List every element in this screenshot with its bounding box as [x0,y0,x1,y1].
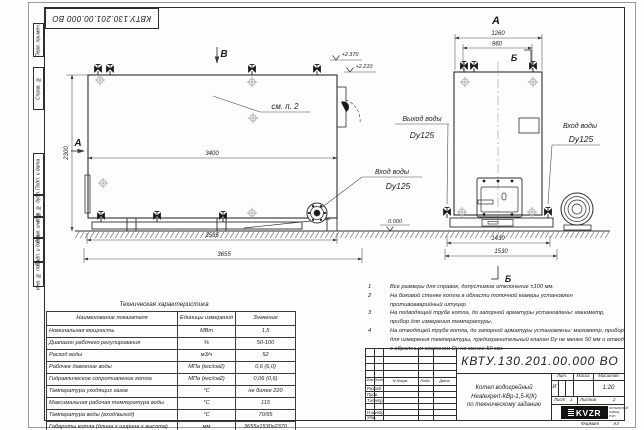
skid-side [450,218,553,227]
spec-table: Наименование показателя Единицы измерени… [46,311,296,430]
boiler-views: 3400 2300 3535 3655 А В см. п. 2 +2.370 … [44,8,624,295]
chimney-pipe [337,87,360,127]
note-item: 3На подводящей трубе котла, до запорной … [368,309,624,327]
scale-header: Масштаб [593,373,624,380]
crosshair-icon [527,207,537,217]
col-header-sign: Подп. [418,378,433,384]
valve-icon [219,212,226,223]
valve-icon [94,65,101,76]
valve-icon [106,65,113,76]
sheet-value: 1 [570,398,572,402]
door-latch-icon [502,193,506,200]
frame-column-sprav-no: Справ. № [33,67,44,110]
drawing-sheet: КВТУ.130.201.00.000 ВО Перв. примен. Спр… [0,0,644,430]
ground-line [75,231,610,238]
frame-column-inv-podl: Инв. № подл. [33,262,44,287]
valve-icon [544,208,551,219]
role-tkontr: Т.контр. [367,399,384,403]
valve-icon [529,62,536,73]
scale-value: 1:20 [593,380,624,396]
frame-column-podp-data-1: Подп. и дата [33,153,44,195]
valve-icon [97,212,104,223]
spec-table-block: Техническая характеристика Наименование … [46,301,282,430]
crosshair-icon [460,77,470,87]
frame-column-perv-primen: Перв. примен. [33,23,44,57]
col-header-izm: Изм [366,378,374,384]
crosshair-icon [95,75,105,85]
format-note: ФорматА3 [581,421,633,426]
dim-1530: 1530 [494,249,508,255]
role-razrab: Разраб. [367,387,382,391]
crosshair-icon [528,77,538,87]
table-row: Температура уходящих газов°Сне более 220 [47,386,296,398]
role-utv: Утв. [367,416,377,420]
inlet-size-label: Dy125 [386,181,411,191]
skid-front [92,218,337,231]
see-note-label: см. п. 2 [271,102,299,111]
lit-value: И [551,380,558,396]
valve-icon [460,62,467,73]
table-row: Диапазон рабочего регулирования%50-100 [47,338,296,350]
side-inlet-label: Вход воды Dy125 [548,122,600,204]
spec-table-title: Техническая характеристика [46,301,282,308]
crosshair-icon [98,178,108,188]
dim-960: 960 [492,42,503,48]
see-note-callout: см. п. 2 [213,96,310,112]
col-header-doc: N докум. [383,378,418,384]
lit-header: Лит. [551,373,573,380]
marker-b-top: Б [511,53,518,63]
valve-icon [443,208,450,219]
note-item: 1Все размеры для справок, допустимое отк… [368,283,624,292]
sheets-label: Листов [580,398,596,402]
table-row: Рабочее давление водыМПа (кгс/см2)0,6 (6… [47,362,296,374]
spec-header-row: Наименование показателя Единицы измерени… [47,312,296,326]
mass-header: Масса [573,373,593,380]
note-item: 2На боковой стенке котла в области топоч… [368,292,624,310]
dim-1430: 1430 [491,236,505,242]
elev-0000: 0.000 [388,219,403,225]
valve-icon [153,212,160,223]
elevation-marks: +2.370 +2.210 [330,52,376,72]
crosshair-icon [247,77,257,87]
logo-bars-icon [568,408,574,417]
inlet-water-label: Вход воды [375,168,410,176]
dim-2300: 2300 [64,146,70,161]
dim-3400: 3400 [205,151,219,157]
crosshair-icon [247,208,257,218]
dim-3535: 3535 [205,233,219,239]
doc-number: КВТУ.130.201.00.000 ВО [456,349,624,373]
outlet-water-label: Выход воды [402,115,442,123]
table-row: Расход водым3/ч52 [47,350,296,362]
furnace-door [477,178,522,217]
col-header-date: Дата [433,378,456,384]
boiler-body-front [88,75,337,218]
inlet-water-label-side: Вход воды [563,122,598,130]
col-header-list: Лист [374,378,383,384]
company-name: КОТЕЛЬНЫЙ ЗАВОД РЭП [609,406,624,419]
valve-icon [470,62,477,73]
crosshair-icon [248,113,258,123]
valve-icon [313,65,320,76]
table-row: Габариты котла (длина х ширина х высота)… [47,422,296,430]
elev-2370: +2.370 [342,52,360,58]
front-view [85,65,360,232]
notes-list: 1Все размеры для справок, допустимое отк… [368,283,624,354]
side-view-title: А [491,15,500,27]
section-markers-front: А В [71,47,228,151]
marker-a: А [73,138,81,149]
document-title: Котел водогрейный Heatexpert-КВр-1,5-К(К… [458,375,550,419]
front-inlet-label: Вход воды Dy125 [321,168,422,208]
table-row: Номинальная мощностьМВт1,5 [47,326,296,338]
title-block: КВТУ.130.201.00.000 ВО Изм Лист N докум.… [365,348,625,421]
inlet-size-label-side: Dy125 [569,134,594,144]
dim-1260: 1260 [491,31,505,37]
marker-b: В [220,49,227,60]
table-row: Температура воды (вход/выход)°С70/95 [47,410,296,422]
kvzr-logo: KVZR [561,406,608,419]
sheets-value: 2 [613,398,615,402]
crosshair-icon [457,207,467,217]
zero-elevation: 0.000 [380,219,410,231]
sheet-label: Лист [554,398,565,402]
outlet-size-label: Dy125 [410,130,435,140]
dim-3655: 3655 [217,252,231,258]
valve-icon [248,65,255,76]
blower-fan [561,193,593,230]
role-prov: Пров. [367,393,378,397]
elev-2210: +2.210 [356,64,374,70]
table-row: Максимальная рабочая температура воды°С1… [47,398,296,410]
sight-port [519,118,539,133]
table-row: Гидравлическое сопротивление котлаМПа (к… [47,374,296,386]
